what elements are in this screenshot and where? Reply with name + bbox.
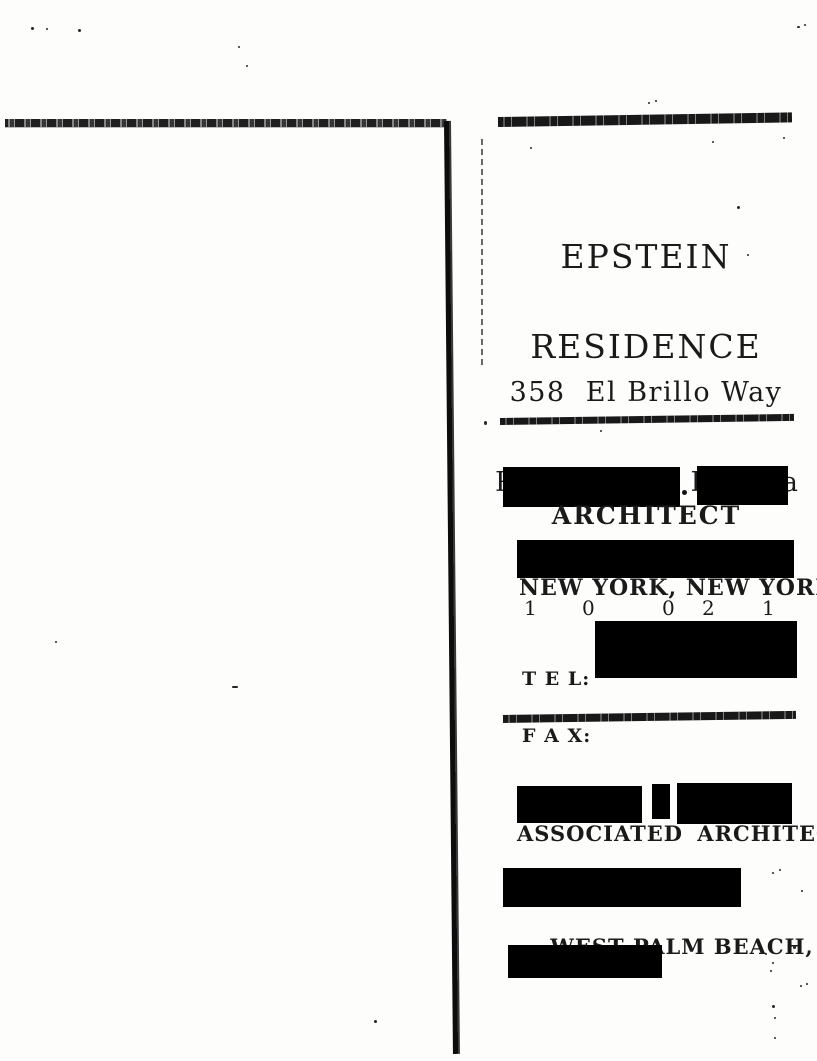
project-title-line1: EPSTEIN (497, 242, 795, 272)
redaction-bar-assoc-street (503, 868, 741, 907)
zip-digit: 1 (524, 596, 537, 620)
noise-speck (374, 1020, 377, 1023)
noise-speck (801, 890, 803, 892)
noise-speck (46, 28, 48, 30)
fax-label: F A X: (522, 727, 591, 746)
noise-speck (765, 953, 767, 955)
redaction-bar-architect-street (517, 540, 794, 578)
noise-speck (793, 946, 796, 949)
noise-speck (797, 26, 800, 28)
project-address-line1: 358 El Brillo Way (495, 378, 797, 408)
zip-digit: 1 (762, 596, 775, 620)
noise-speck (55, 641, 57, 643)
noise-speck (246, 65, 248, 67)
scanned-title-block-page: EPSTEIN RESIDENCE 358 El Brillo Way Palm… (0, 0, 817, 1061)
telfax-labels: T E L: F A X: (522, 632, 591, 784)
zip-digit: 0 (582, 596, 595, 620)
noise-speck (747, 254, 749, 256)
noise-speck (648, 102, 650, 104)
noise-speck (655, 100, 657, 102)
noise-speck (783, 137, 785, 139)
architect-heading: ARCHITECT (500, 501, 793, 530)
redaction-bar-assoc-phone (508, 945, 662, 978)
zip-digit: 0 (662, 596, 675, 620)
noise-speck (600, 430, 602, 432)
noise-speck (800, 985, 802, 987)
noise-speck (806, 983, 808, 985)
titleblock-left-dashed-rule (481, 139, 483, 365)
noise-speck (238, 46, 240, 48)
noise-speck (772, 962, 774, 964)
architect-zip-row: 1 0 0 2 1 (524, 596, 769, 616)
noise-speck (804, 24, 806, 26)
noise-speck (484, 421, 487, 425)
redaction-bar-assoc-name-mid (652, 784, 670, 819)
noise-speck (772, 872, 774, 874)
sheet-border-horizontal-rule (5, 119, 447, 127)
redaction-bar-assoc-name-left (517, 786, 642, 823)
sheet-border-vertical-rule (444, 121, 460, 1054)
noise-speck (31, 27, 34, 30)
noise-speck (770, 970, 772, 972)
period-mark (682, 490, 687, 495)
noise-speck (232, 686, 238, 688)
noise-speck (779, 869, 781, 871)
noise-speck (712, 141, 714, 143)
noise-speck (737, 206, 740, 209)
associated-architect-heading: ASSOCIATED ARCHITECT (517, 821, 817, 846)
redaction-bar-architect-name-right (697, 466, 788, 505)
redaction-bar-telfax-numbers (595, 621, 797, 678)
noise-speck (774, 1037, 776, 1039)
noise-speck (78, 29, 81, 32)
titleblock-top-rule (498, 112, 792, 127)
tel-label: T E L: (522, 670, 591, 689)
zip-digit: 2 (702, 596, 715, 620)
redaction-bar-assoc-name-right (677, 783, 792, 824)
noise-speck (772, 1005, 775, 1008)
noise-speck (774, 1017, 776, 1019)
noise-speck (530, 147, 532, 149)
